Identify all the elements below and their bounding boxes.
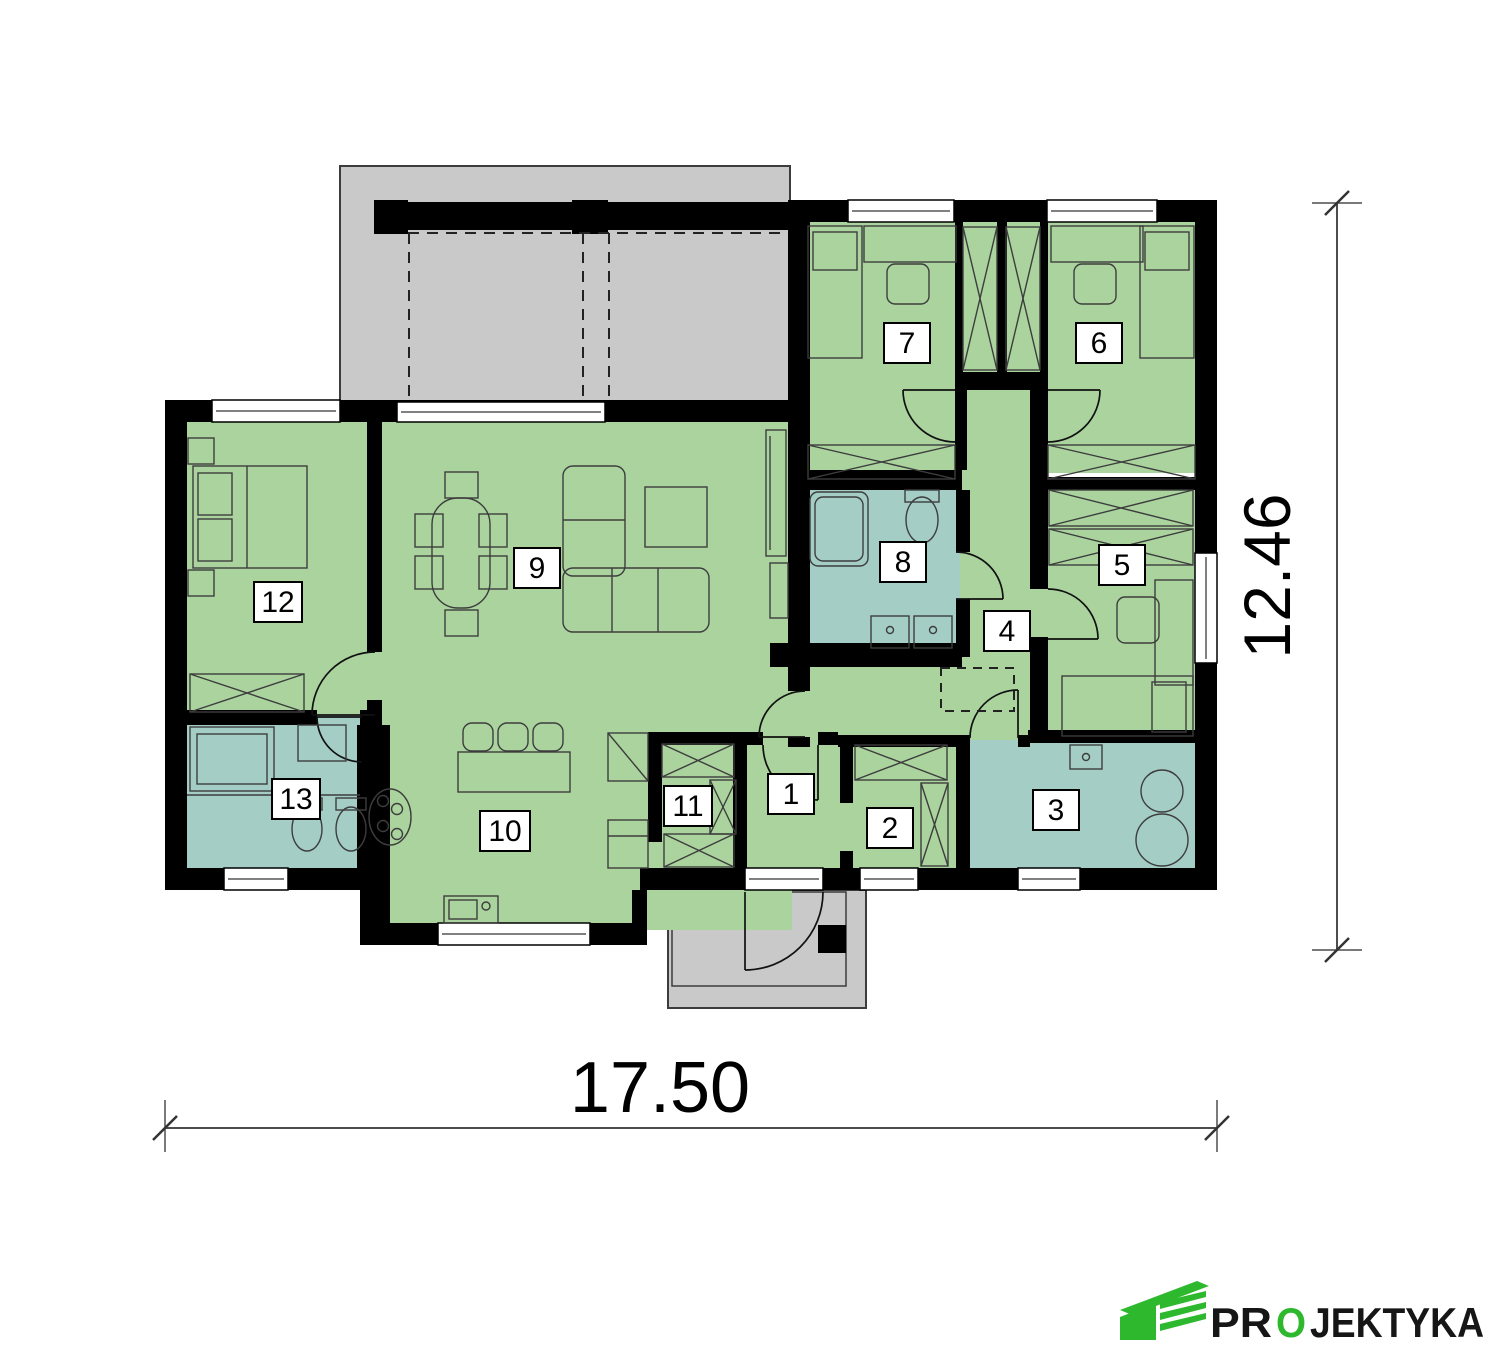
room-label-13: 13 <box>272 779 320 819</box>
window <box>1018 868 1080 890</box>
room-number: 9 <box>529 552 546 585</box>
brand-text-pre: PR <box>1210 1299 1272 1346</box>
window <box>860 868 918 890</box>
floor-plan-page: 1 2 3 4 5 6 7 8 9 10 11 12 13 17.50 12.4… <box>0 0 1500 1352</box>
room-number: 13 <box>279 783 312 816</box>
room-label-12: 12 <box>254 582 302 622</box>
room-label-9: 9 <box>514 548 560 588</box>
window <box>438 923 590 945</box>
terrace-column-left <box>374 200 408 234</box>
window <box>212 400 340 422</box>
brand-house-icon <box>1120 1281 1209 1340</box>
room-label-2: 2 <box>867 808 913 848</box>
room-label-3: 3 <box>1033 790 1079 830</box>
dimension-height: 12.46 <box>1230 191 1362 962</box>
brand-text-post: JEKTYKA <box>1310 1299 1484 1346</box>
room-label-8: 8 <box>880 542 926 582</box>
room-label-6: 6 <box>1076 323 1122 363</box>
dimension-width: 17.50 <box>153 1048 1229 1152</box>
window <box>1047 200 1157 222</box>
window <box>1195 553 1217 663</box>
room-number: 1 <box>783 778 800 811</box>
height-dimension-label: 12.46 <box>1230 493 1304 658</box>
brand-text-accent: O <box>1276 1299 1306 1346</box>
floor-plan-canvas: 1 2 3 4 5 6 7 8 9 10 11 12 13 17.50 12.4… <box>0 0 1500 1352</box>
floor-room-3 <box>966 740 1196 870</box>
room-number: 11 <box>672 790 703 823</box>
brand-logo: PR O JEKTYKA <box>1120 1281 1484 1346</box>
room-number: 7 <box>899 327 916 360</box>
room-label-4: 4 <box>984 611 1030 651</box>
room-label-11: 11 <box>664 786 712 826</box>
room-number: 3 <box>1048 794 1065 827</box>
window <box>224 868 288 890</box>
width-dimension-label: 17.50 <box>570 1048 750 1128</box>
room-number: 4 <box>999 615 1016 648</box>
terrace-window <box>397 402 605 422</box>
room-number: 6 <box>1091 327 1108 360</box>
entry-door-panel <box>745 868 823 890</box>
room-number: 5 <box>1114 549 1131 582</box>
room-label-1: 1 <box>768 774 814 814</box>
window <box>848 200 954 222</box>
floor-room-5 <box>1043 482 1198 734</box>
porch-column <box>818 925 846 953</box>
floor-room-12 <box>182 415 382 715</box>
room-number: 2 <box>882 812 899 845</box>
room-number: 8 <box>895 546 912 579</box>
terrace-column-mid <box>572 200 608 234</box>
room-label-10: 10 <box>480 811 530 851</box>
room-label-7: 7 <box>884 323 930 363</box>
room-number: 12 <box>261 586 294 619</box>
floor-room-7 <box>800 218 960 473</box>
room-number: 10 <box>488 815 521 848</box>
terrace <box>340 166 790 410</box>
room-label-5: 5 <box>1099 545 1145 585</box>
